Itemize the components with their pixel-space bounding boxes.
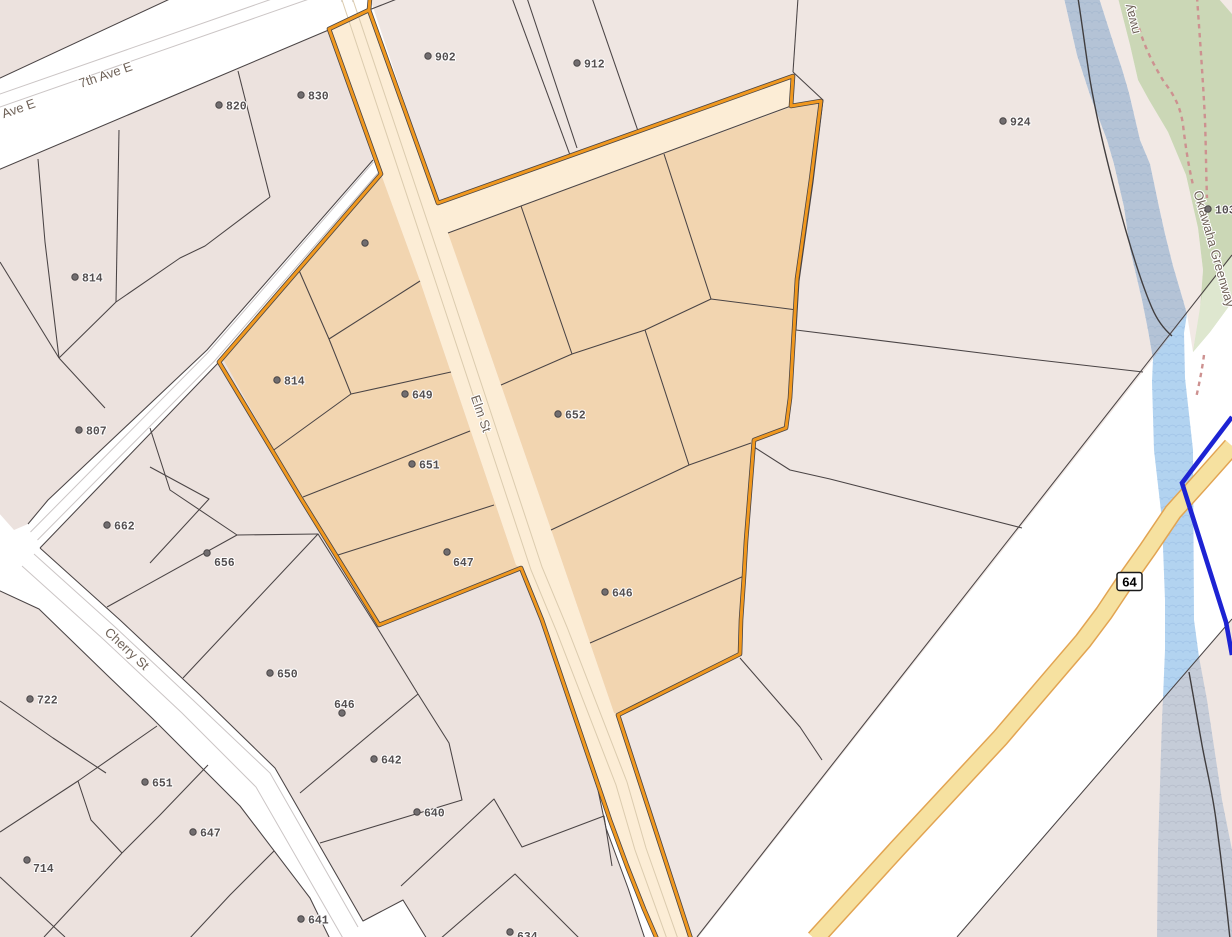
svg-text:634: 634 [517, 931, 538, 937]
svg-text:647: 647 [453, 557, 474, 570]
svg-text:651: 651 [419, 460, 440, 473]
svg-text:662: 662 [114, 521, 135, 534]
svg-text:714: 714 [33, 863, 54, 876]
svg-text:912: 912 [584, 59, 605, 72]
svg-text:640: 640 [424, 808, 445, 821]
svg-text:650: 650 [277, 669, 298, 682]
svg-text:656: 656 [214, 557, 235, 570]
svg-text:649: 649 [412, 390, 433, 403]
svg-text:820: 820 [226, 101, 247, 114]
svg-text:641: 641 [308, 915, 329, 928]
svg-text:722: 722 [37, 695, 58, 708]
svg-text:647: 647 [200, 828, 221, 841]
svg-text:642: 642 [381, 755, 402, 768]
svg-text:651: 651 [152, 778, 173, 791]
svg-text:646: 646 [612, 588, 633, 601]
svg-text:814: 814 [284, 376, 305, 389]
svg-text:64: 64 [1122, 575, 1137, 590]
svg-text:646: 646 [334, 699, 355, 712]
svg-text:902: 902 [435, 52, 456, 65]
svg-text:830: 830 [308, 91, 329, 104]
svg-text:652: 652 [565, 410, 586, 423]
svg-text:924: 924 [1010, 117, 1031, 130]
svg-text:814: 814 [82, 273, 103, 286]
svg-text:103: 103 [1215, 205, 1232, 218]
svg-text:807: 807 [86, 426, 107, 439]
